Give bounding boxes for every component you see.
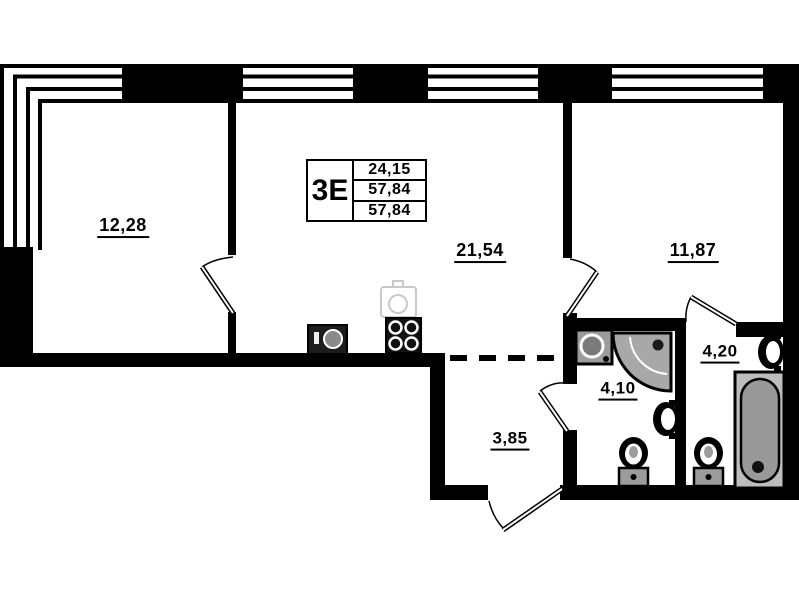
wall-pier [538, 64, 612, 103]
floor-plan-drawing [0, 0, 799, 600]
area-label-hallway: 3,85 [490, 430, 529, 451]
wall-hall-left [430, 357, 445, 500]
washing-machine-icon [576, 330, 612, 364]
toilet-icon [619, 437, 648, 486]
floor-plan: 12,28 21,54 11,87 3,85 4,10 4,20 3Е 24,1… [0, 0, 799, 600]
wall-pier [763, 64, 799, 103]
area-label-bathroom-2: 4,20 [700, 343, 739, 364]
wall-bottom-main [0, 353, 445, 367]
apartment-type-label: 3Е [308, 161, 354, 220]
stove-icon [386, 318, 421, 353]
wall-left-block [0, 247, 33, 367]
wall-bath-divider [675, 318, 686, 490]
legend-area-row: 57,84 [354, 181, 425, 201]
legend-area-row: 24,15 [354, 161, 425, 181]
wall-bath-left-lower [563, 430, 577, 490]
door-swing-bathroom-2 [686, 297, 736, 324]
area-label-room-right: 11,87 [668, 241, 719, 263]
sink-icon [653, 400, 679, 439]
apartment-legend: 3Е 24,15 57,84 57,84 [306, 159, 427, 222]
legend-area-row: 57,84 [354, 202, 425, 220]
toilet-icon [694, 437, 723, 486]
window [243, 64, 353, 103]
wall-room11-left [563, 100, 572, 258]
area-label-room-center: 21,54 [454, 241, 506, 263]
wall-pier [122, 64, 243, 103]
door-swing-room-left [202, 257, 233, 313]
area-label-bathroom-1: 4,10 [598, 380, 637, 401]
window [612, 64, 763, 103]
window [428, 64, 538, 103]
door-swing-bathroom-1 [540, 383, 567, 431]
sink-icon [758, 333, 784, 372]
wall-room12-lower [228, 312, 236, 357]
wall-hall-bottom [430, 485, 488, 500]
wall-room12-upper [228, 100, 236, 255]
area-label-room-left: 12,28 [97, 216, 149, 238]
washing-machine-icon [308, 325, 347, 354]
kitchen-sink-icon [381, 281, 416, 317]
apartment-areas-table: 24,15 57,84 57,84 [354, 161, 425, 220]
wall-pier [353, 64, 428, 103]
door-swing-entrance [489, 489, 562, 530]
door-swing-room-right [567, 259, 597, 316]
bathtub-icon [735, 372, 784, 488]
